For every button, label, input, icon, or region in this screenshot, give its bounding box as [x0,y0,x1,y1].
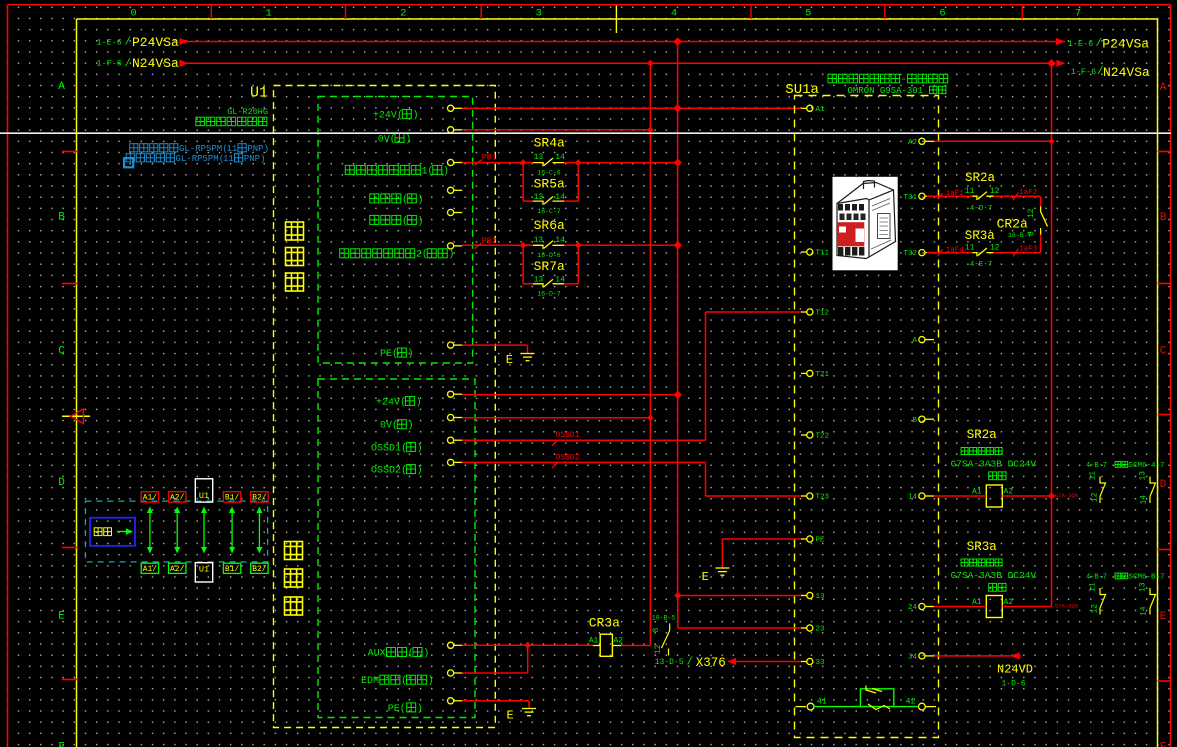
svg-text:+24V: +24V [373,110,397,121]
svg-text:G7SA-3A3B DC24V: G7SA-3A3B DC24V [951,570,1037,581]
svg-text:PB2: PB2 [482,236,497,246]
svg-text:): ) [260,154,265,164]
svg-text:SR7a: SR7a [534,259,565,274]
svg-text:SR4a: SR4a [534,135,565,150]
svg-text:8: 8 [652,628,661,633]
svg-text:1-E-6: 1-E-6 [1068,39,1094,49]
svg-text:SCM6-B-7: SCM6-B-7 [1129,574,1165,582]
svg-text:N24VD: N24VD [997,662,1033,676]
svg-text:): ) [418,194,424,206]
svg-text:/: / [1096,38,1103,50]
svg-text:7: 7 [1075,8,1081,20]
svg-text:14: 14 [908,494,918,502]
svg-text:C: C [1160,346,1167,358]
svg-text:A1/: A1/ [143,565,158,574]
svg-text:23: 23 [816,626,826,634]
svg-text:13: 13 [1139,471,1148,481]
svg-text:0V: 0V [378,134,390,145]
svg-text:5: 5 [805,8,811,20]
svg-text:14: 14 [1140,606,1149,616]
svg-text:T23: T23 [816,494,830,502]
svg-text:12: 12 [1027,208,1036,218]
svg-text:OMRON G9SA-301: OMRON G9SA-301 [848,86,924,96]
svg-text:11: 11 [226,144,237,154]
svg-text:11: 11 [965,187,975,196]
svg-text:SR2a: SR2a [967,428,998,442]
svg-text:10-B-5: 10-B-5 [652,615,676,622]
svg-text:A2: A2 [908,139,917,147]
svg-text:13-D-5: 13-D-5 [655,658,684,667]
svg-text:8: 8 [1027,231,1036,236]
svg-text:E: E [702,570,709,584]
svg-text:13: 13 [534,236,544,245]
svg-text:13: 13 [534,153,544,162]
svg-text:SR6a: SR6a [534,218,565,233]
svg-text:16-C-6: 16-C-6 [537,169,561,176]
svg-text:): ) [417,703,423,715]
svg-text:16-D-7: 16-D-7 [537,291,561,298]
svg-text:PB1: PB1 [482,153,497,163]
svg-text:X376: X376 [696,656,726,670]
svg-text:A1: A1 [816,106,826,114]
svg-text:A: A [912,337,917,345]
svg-text:1-E-6: 1-E-6 [96,37,122,47]
svg-text:1aF1: 1aF1 [946,190,965,198]
svg-text:6: 6 [939,8,945,20]
svg-text:): ) [448,249,454,261]
svg-text:13: 13 [1139,582,1148,592]
svg-text:4-B-7: 4-B-7 [1086,573,1107,581]
svg-text:14: 14 [555,236,565,245]
svg-text:): ) [416,396,422,408]
svg-text:CR2a: CR2a [997,216,1028,231]
svg-text:12: 12 [990,243,1000,252]
svg-text:B1/: B1/ [225,565,240,574]
svg-text:SCM6-4-7: SCM6-4-7 [1129,462,1165,470]
svg-text:G7A-3Q8: G7A-3Q8 [1055,602,1078,609]
svg-text:1aF4: 1aF4 [946,247,965,255]
svg-text:T11: T11 [816,250,830,258]
svg-text:G7A-3Q8: G7A-3Q8 [1055,492,1078,499]
svg-text:): ) [423,647,429,659]
svg-text:B: B [58,212,65,224]
svg-text:1aF2: 1aF2 [1019,189,1037,197]
svg-text:/: / [687,657,694,669]
svg-text:12: 12 [990,187,1000,196]
svg-text:SR5a: SR5a [534,176,565,191]
svg-text:A2: A2 [614,636,624,645]
svg-text:1-F-6: 1-F-6 [1071,67,1097,77]
svg-text:E: E [58,611,65,623]
svg-text:PE: PE [816,537,826,545]
svg-text:EDM: EDM [361,676,379,687]
svg-text:4-B-7: 4-B-7 [1086,462,1107,470]
svg-text:T31: T31 [903,194,917,202]
svg-text:GL-RP5PM: GL-RP5PM [176,154,219,164]
svg-text:11: 11 [223,154,234,164]
svg-text:0: 0 [130,8,136,20]
svg-text:OSSD1: OSSD1 [556,431,580,440]
svg-text:): ) [417,465,423,477]
svg-text:F: F [1160,742,1167,747]
svg-text:14: 14 [1140,495,1149,505]
svg-text:11: 11 [965,243,975,252]
svg-text:12: 12 [654,644,663,654]
svg-text:): ) [417,442,423,454]
svg-text:B2/: B2/ [252,565,267,574]
svg-text:16-D-6: 16-D-6 [537,252,561,259]
svg-text:24: 24 [908,604,918,612]
svg-text:T22: T22 [816,433,830,441]
svg-text:): ) [413,109,419,121]
svg-text:GL-RP5PM: GL-RP5PM [179,144,222,154]
svg-text:0V: 0V [380,421,392,432]
svg-text:1: 1 [266,8,272,20]
svg-text:14: 14 [555,153,565,162]
svg-text:B: B [1160,212,1167,224]
svg-text:SR3a: SR3a [967,540,998,554]
svg-text:34: 34 [908,653,918,661]
svg-text:/: / [125,58,132,70]
svg-text:CR3a: CR3a [589,615,620,630]
svg-text:N24VSa: N24VSa [1103,65,1150,80]
svg-text:F: F [58,742,65,747]
svg-text:1aF3: 1aF3 [1019,245,1038,253]
svg-text:-: - [901,75,907,86]
svg-text:P24VSa: P24VSa [1102,36,1149,51]
svg-text:42: 42 [905,696,915,706]
svg-text:+24V: +24V [376,397,400,408]
svg-text:): ) [428,675,434,687]
svg-text:D: D [58,477,65,489]
svg-text:41: 41 [817,696,827,706]
svg-text:SR3a: SR3a [965,229,996,243]
svg-text:C: C [58,346,65,358]
svg-text:T21: T21 [816,371,830,379]
svg-text:2: 2 [400,8,406,20]
svg-text:GL-R20HG: GL-R20HG [227,107,268,117]
svg-text:N24VSa: N24VSa [132,56,179,71]
svg-text:SR2a: SR2a [965,171,996,185]
svg-text:11: 11 [1089,471,1098,481]
svg-text:): ) [443,165,449,177]
svg-text:4-D-7: 4-D-7 [970,205,993,213]
svg-text:4: 4 [671,8,677,20]
svg-text:U1: U1 [199,491,209,501]
svg-text:11: 11 [1089,582,1098,592]
svg-text:33: 33 [816,659,826,667]
svg-text:PE(: PE( [388,703,406,715]
svg-text:E: E [507,709,514,723]
svg-text:E: E [506,353,513,367]
svg-text:): ) [264,144,269,154]
svg-text:3: 3 [535,8,541,20]
svg-text:): ) [408,348,414,360]
svg-text:OSSD2: OSSD2 [556,454,580,463]
svg-text:G7SA-3A3B DC24V: G7SA-3A3B DC24V [951,459,1037,470]
svg-text:AUX: AUX [368,648,386,659]
svg-text:U1: U1 [199,564,209,574]
svg-text:): ) [418,215,424,227]
svg-text:B1/: B1/ [225,494,240,503]
svg-text:B: B [912,417,917,425]
svg-text:A: A [58,81,65,93]
svg-text:OSSD1: OSSD1 [371,443,401,454]
svg-text:T32: T32 [903,250,917,258]
svg-text:16-C-7: 16-C-7 [537,208,561,215]
svg-text:12: 12 [1091,604,1100,614]
svg-text:A1: A1 [589,636,599,645]
svg-text:PNP: PNP [247,144,263,154]
svg-text:/: / [125,37,132,49]
svg-text:): ) [405,133,411,145]
svg-text:1-D-6: 1-D-6 [1002,680,1026,689]
svg-text:4-E-7: 4-E-7 [970,261,993,269]
svg-text:A1/: A1/ [143,494,158,503]
svg-text:P24VSa: P24VSa [132,35,179,50]
svg-text:PE: PE [380,349,392,360]
svg-text:A: A [1160,82,1167,94]
svg-text:1-F-6: 1-F-6 [96,59,122,69]
svg-text:B2/: B2/ [252,494,267,503]
svg-text:U1: U1 [250,85,268,102]
svg-text:OSSD2: OSSD2 [371,466,401,477]
svg-text:T12: T12 [816,310,830,318]
svg-text:12: 12 [1091,492,1100,502]
svg-text:E: E [1160,611,1167,623]
svg-text:): ) [408,420,414,432]
svg-text:D: D [1160,479,1167,491]
svg-text:PNP: PNP [244,154,260,164]
svg-text:A2/: A2/ [170,565,185,574]
svg-text:A2/: A2/ [170,494,185,503]
svg-text:13: 13 [816,593,826,601]
